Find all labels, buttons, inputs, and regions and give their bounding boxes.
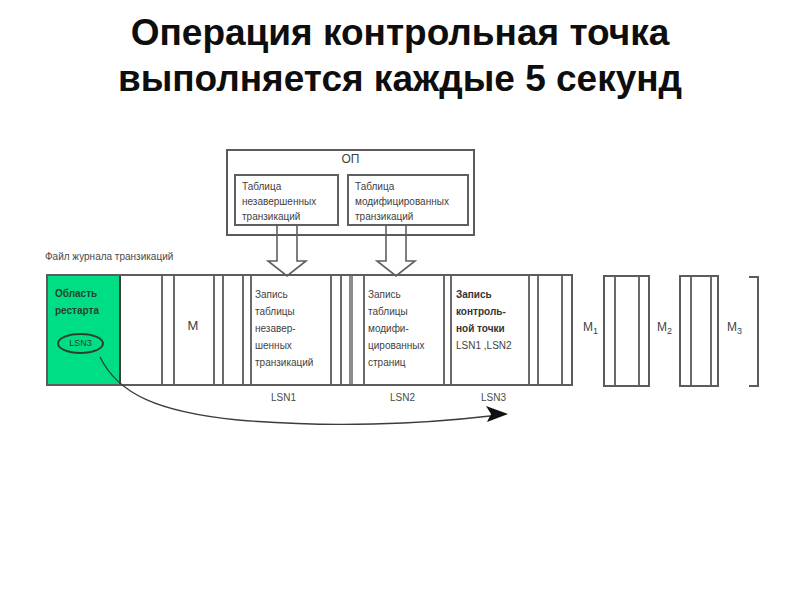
mirror2-divider [690,277,692,385]
checkpoint-record: Запись контроль- ной точки LSN1 ,LSN2 [456,286,536,354]
rec1-line1: Запись [255,286,339,303]
log-file-label: Файл журнала транзикаций [45,251,173,262]
rec1-line3: незавер- [255,320,339,337]
modified-table-line2: модифицированных [355,194,467,209]
checkpoint-pointer-arrowhead-icon [486,406,508,422]
mirror1-sub: 1 [593,326,598,336]
lsn3-label: LSN3 [481,392,506,403]
segment-divider [340,276,342,384]
segment-divider [450,276,452,384]
rec2-line4: цированных [368,337,448,354]
mirror1-divider [638,277,640,385]
segment-divider [161,276,163,384]
mirror1-rect [603,275,650,387]
mirror2-rect [679,275,719,387]
segment-divider [222,276,224,384]
rec3-line1: Запись [456,286,536,303]
op-memory-label: ОП [228,152,473,166]
modified-table-line3: транзикаций [355,209,467,224]
segment-divider [349,276,353,384]
restart-area-line2: рестарта [55,305,99,316]
modified-table-line1: Таблица [355,179,467,194]
rec2-line2: таблицы [368,303,448,320]
mirror2-sub: 2 [667,326,672,336]
mirror1-divider [614,277,616,385]
restart-area: Область рестарта LSN3 [48,276,121,384]
slide-canvas: Операция контрольная точка выполняется к… [0,0,800,600]
slide-title-line1: Операция контрольная точка [0,10,800,56]
segment-divider [242,276,244,384]
rec1-line4: шенных [255,337,339,354]
modified-pages-record: Запись таблицы модифи- цированных страни… [368,286,448,371]
segment-divider [537,276,539,384]
rec2-line3: модифи- [368,320,448,337]
restart-area-line1: Область [55,288,97,299]
mirror3-base: М [727,320,737,334]
unfinished-transactions-record: Запись таблицы незавер- шенных транзикац… [255,286,339,371]
restart-lsn-oval: LSN3 [57,333,104,354]
unfinished-table-line2: незавершенных [242,194,337,209]
unfinished-table-line3: транзикаций [242,209,337,224]
lsn2-label: LSN2 [390,392,415,403]
mirror3-partial-rect [749,276,759,387]
rec3-line4: LSN1 ,LSN2 [456,337,536,354]
mirror2-label: М2 [657,320,672,336]
op-memory-box: ОП Таблица незавершенных транзикаций Таб… [226,149,475,236]
segment-divider [561,276,563,384]
rec1-line5: транзикаций [255,354,339,371]
mirror2-divider [710,277,712,385]
m-segment-label: М [173,318,213,333]
segment-divider [213,276,215,384]
slide-title: Операция контрольная точка выполняется к… [0,10,800,102]
mirror3-label: М3 [727,320,742,336]
mirror1-label: М1 [583,320,598,336]
mirror3-sub: 3 [737,326,742,336]
lsn1-label: LSN1 [271,392,296,403]
transaction-log-strip: Область рестарта LSN3 М Запись таблицы н… [46,274,573,386]
segment-divider [363,276,365,384]
rec1-line2: таблицы [255,303,339,320]
rec2-line5: страниц [368,354,448,371]
slide-title-line2: выполняется каждые 5 секунд [0,56,800,102]
rec2-line1: Запись [368,286,448,303]
mirror1-base: М [583,320,593,334]
unfinished-table-line1: Таблица [242,179,337,194]
unfinished-transactions-table-box: Таблица незавершенных транзикаций [234,174,339,226]
modified-transactions-table-box: Таблица модифицированных транзикаций [347,174,469,226]
segment-divider [250,276,252,384]
rec3-line3: ной точки [456,320,536,337]
mirror2-base: М [657,320,667,334]
rec3-line2: контроль- [456,303,536,320]
